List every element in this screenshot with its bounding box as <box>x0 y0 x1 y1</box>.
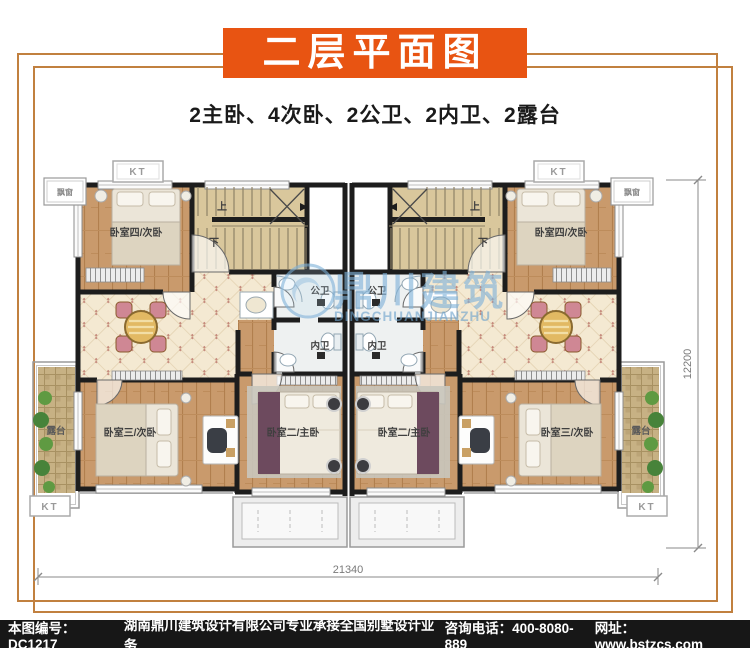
ensuite-bath-label: 内卫 <box>367 340 387 352</box>
terrace-label: 露台 <box>631 425 651 437</box>
footer-bar: 本图编号：DC1217 湖南鼎川建筑设计有限公司专业承接全国别墅设计业务 咨询电… <box>0 620 750 648</box>
watermark-en: DINGCHUANJIANZHU <box>334 309 491 324</box>
ensuite-bath-label: 内卫 <box>310 340 330 352</box>
phone-line: 咨询电话：400-8080-889 <box>445 617 595 652</box>
ac-platform-label: KT <box>129 167 146 178</box>
page-title-banner: 二层平面图 <box>223 28 527 78</box>
bay-window-label: 飘窗 <box>624 187 640 197</box>
floor-plan: 卧室四/次卧 卧室四/次卧 卧室三/次卧 卧室三/次卧 卧室二/主卧 卧室二/主… <box>25 148 725 588</box>
bedroom3-label: 卧室三/次卧 <box>541 426 594 439</box>
master-label: 卧室二/主卧 <box>378 426 431 439</box>
watermark-logo-icon <box>282 265 334 317</box>
ac-platform-label: KT <box>638 502 655 513</box>
stair-up-label: 上 <box>217 200 227 213</box>
width-dimension: 21340 <box>333 564 364 576</box>
right-unit <box>350 161 667 547</box>
ac-platform-label: KT <box>41 502 58 513</box>
website-line: 网址：www.bstzcs.com <box>595 617 742 652</box>
master-label: 卧室二/主卧 <box>267 426 320 439</box>
bedroom3-label: 卧室三/次卧 <box>104 426 157 439</box>
bedroom4-label: 卧室四/次卧 <box>110 226 163 239</box>
depth-dimension: 12200 <box>682 349 694 380</box>
bedroom4-label: 卧室四/次卧 <box>535 226 588 239</box>
terrace-label: 露台 <box>46 425 66 437</box>
drawing-number: 本图编号：DC1217 <box>8 617 124 652</box>
stair-up-label: 上 <box>470 200 480 213</box>
plan-summary: 2主卧、4次卧、2公卫、2内卫、2露台 <box>0 99 750 129</box>
ac-platform-label: KT <box>550 167 567 178</box>
stair-down-label: 下 <box>209 237 219 249</box>
left-unit <box>30 161 347 547</box>
watermark: 鼎川建筑 DINGCHUANJIANZHU <box>282 265 506 324</box>
company-line: 湖南鼎川建筑设计有限公司专业承接全国别墅设计业务 <box>124 614 445 654</box>
bay-window-label: 飘窗 <box>57 187 73 197</box>
watermark-cn: 鼎川建筑 <box>334 270 506 314</box>
stair-down-label: 下 <box>478 237 488 249</box>
page-title: 二层平面图 <box>262 32 487 74</box>
